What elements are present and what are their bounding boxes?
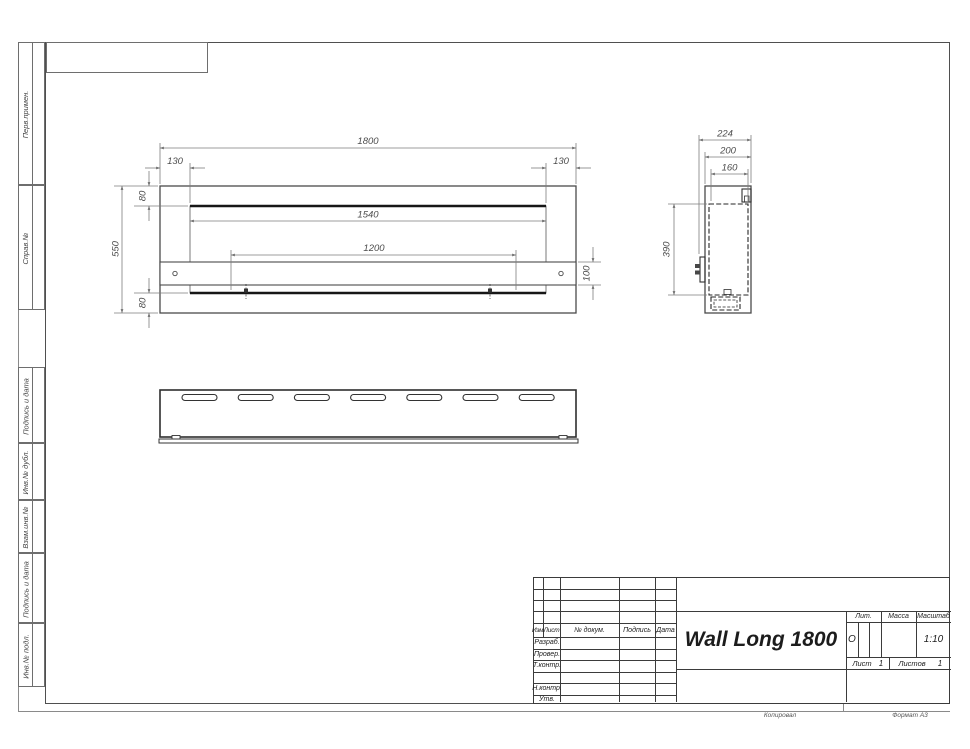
dim-side-depth-body: 200: [719, 146, 737, 157]
tb-lit-value: О: [846, 622, 858, 657]
footer-format: Формат А3: [875, 712, 945, 719]
tb-mass-label: Масса: [881, 611, 916, 622]
bottom-rail: [159, 439, 578, 443]
tb-row-tkontr: Т.контр.: [534, 660, 560, 672]
vent-slot: [407, 395, 442, 401]
dim-front-bracket-height: 100: [582, 265, 593, 282]
title-block: Изм. Лист № докум. Подпись Дата Разраб. …: [533, 577, 950, 704]
tb-row-razrab: Разраб.: [534, 637, 560, 649]
vent-slot: [238, 395, 273, 401]
drawing-sheet: Перв.примен. Справ.№ Подпись и дата Инв.…: [0, 0, 970, 749]
vent-slot: [351, 395, 386, 401]
dim-front-inset-right: 130: [553, 156, 570, 167]
dim-front-burner-span: 1200: [363, 243, 385, 254]
tb-scale-label: Масштаб: [916, 611, 951, 622]
tb-header-list: Лист: [543, 623, 560, 637]
side-outer-body: [705, 186, 751, 313]
dim-front-width: 1800: [357, 136, 379, 147]
side-burner-hidden: [711, 297, 740, 310]
tb-row-utv: Утв.: [534, 695, 560, 705]
tb-header-data: Дата: [655, 623, 676, 637]
fastener-mark-right: [488, 284, 492, 299]
bracket-screw-bottom: [695, 271, 700, 275]
footer-divider: [843, 704, 844, 711]
side-insert-hidden: [709, 204, 748, 295]
tb-sheet-label: Лист: [848, 657, 876, 669]
dim-side-depth-inner: 160: [722, 163, 739, 174]
dim-side-insert-height: 390: [662, 241, 673, 258]
dim-front-height: 550: [111, 240, 122, 257]
side-wall-bracket: [700, 257, 705, 282]
doc-title: Wall Long 1800: [676, 611, 846, 669]
vent-slot: [182, 395, 217, 401]
dim-side-depth-total: 224: [716, 129, 733, 140]
vent-slot: [294, 395, 329, 401]
tb-header-docnum: № докум.: [560, 623, 619, 637]
bottom-view: [159, 390, 578, 443]
vent-slot: [519, 395, 554, 401]
tb-sheets-value: 1: [932, 657, 948, 669]
dim-front-inset-left: 130: [167, 156, 184, 167]
dim-front-inset-top: 80: [138, 190, 149, 201]
dim-front-inset-bottom: 80: [138, 297, 149, 308]
tb-row-prover: Провер.: [534, 649, 560, 661]
tb-sheet-value: 1: [874, 657, 888, 669]
footer-copied: Копировал: [745, 712, 815, 719]
dim-front-opening-width: 1540: [357, 210, 379, 221]
tb-header-izm: Изм.: [534, 623, 543, 637]
side-view: 224 200 160 390: [662, 129, 752, 314]
tb-lit-label: Лит.: [846, 611, 881, 622]
side-burner-hidden-inner: [714, 300, 737, 307]
tb-header-podpis: Подпись: [619, 623, 655, 637]
tb-sheets-label: Листов: [894, 657, 930, 669]
vent-slot: [463, 395, 498, 401]
fastener-mark-left: [244, 284, 248, 299]
bracket-screw-top: [695, 264, 700, 268]
front-view: 1800 130 130 80 550 80: [111, 136, 602, 328]
front-mounting-bar: [160, 262, 576, 285]
tb-scale-value: 1:10: [916, 622, 951, 657]
side-bottom-clip: [724, 290, 731, 295]
tb-row-nkontr: Н.контр.: [534, 683, 560, 695]
side-top-notch: [742, 189, 751, 202]
